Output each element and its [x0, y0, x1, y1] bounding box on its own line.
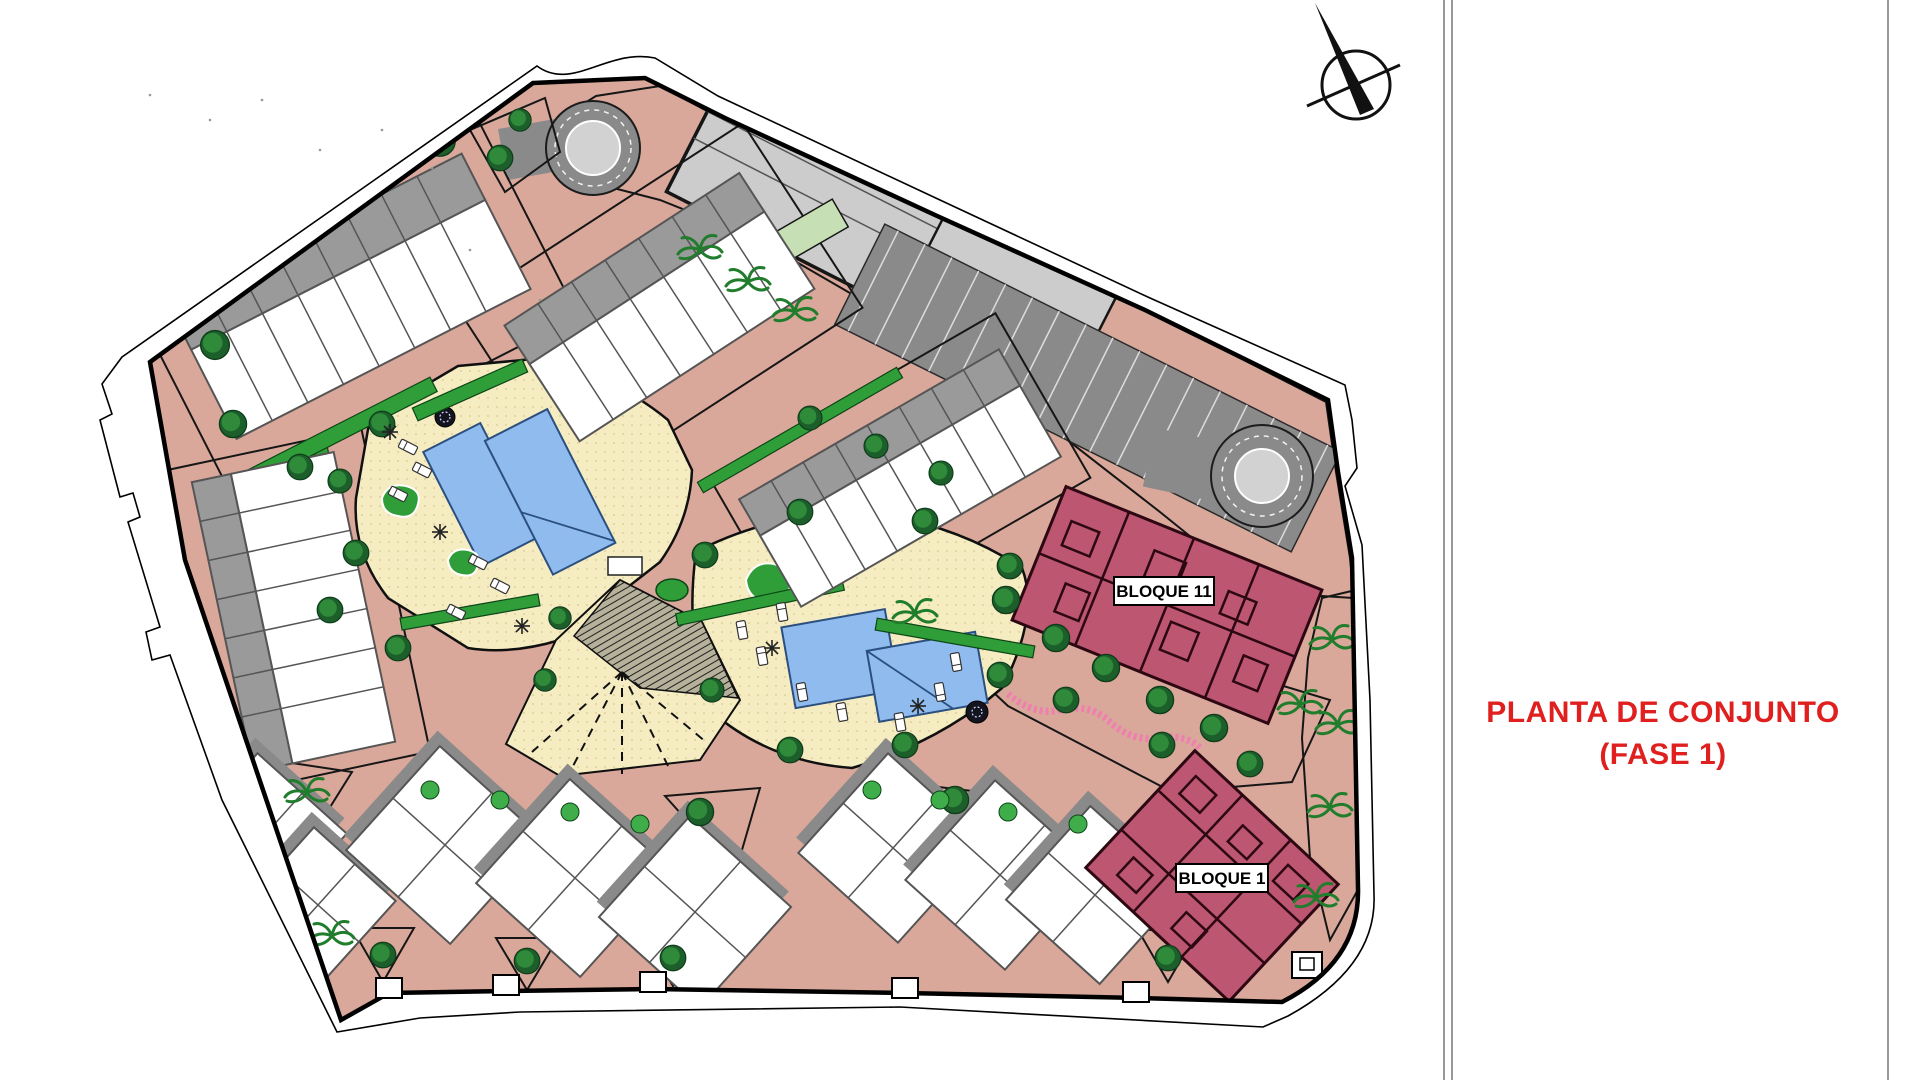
- plan-title: PLANTA DE CONJUNTO (FASE 1): [1486, 696, 1839, 771]
- roundabout-west: [546, 101, 640, 195]
- stairs-icon: [840, 130, 877, 163]
- plan-title-line1: PLANTA DE CONJUNTO: [1486, 696, 1839, 729]
- bloque-11-label-text: BLOQUE 11: [1116, 582, 1211, 601]
- bloque-1-label: BLOQUE 1: [1176, 864, 1268, 892]
- site-interior: [122, 58, 1360, 1020]
- utility-cabin: [1292, 952, 1322, 978]
- sheet-divider-left: [1444, 0, 1452, 1080]
- plan-title-line2: (FASE 1): [1599, 738, 1726, 771]
- bloque-1-label-text: BLOQUE 1: [1179, 869, 1266, 888]
- site-plan-canvas: BLOQUE 11 BLOQUE 1 PLANTA DE CONJUNTO (F…: [0, 0, 1920, 1080]
- bloque-11-label: BLOQUE 11: [1114, 577, 1214, 605]
- north-arrow-icon: [1307, 3, 1400, 119]
- roundabout-east: [1211, 425, 1313, 527]
